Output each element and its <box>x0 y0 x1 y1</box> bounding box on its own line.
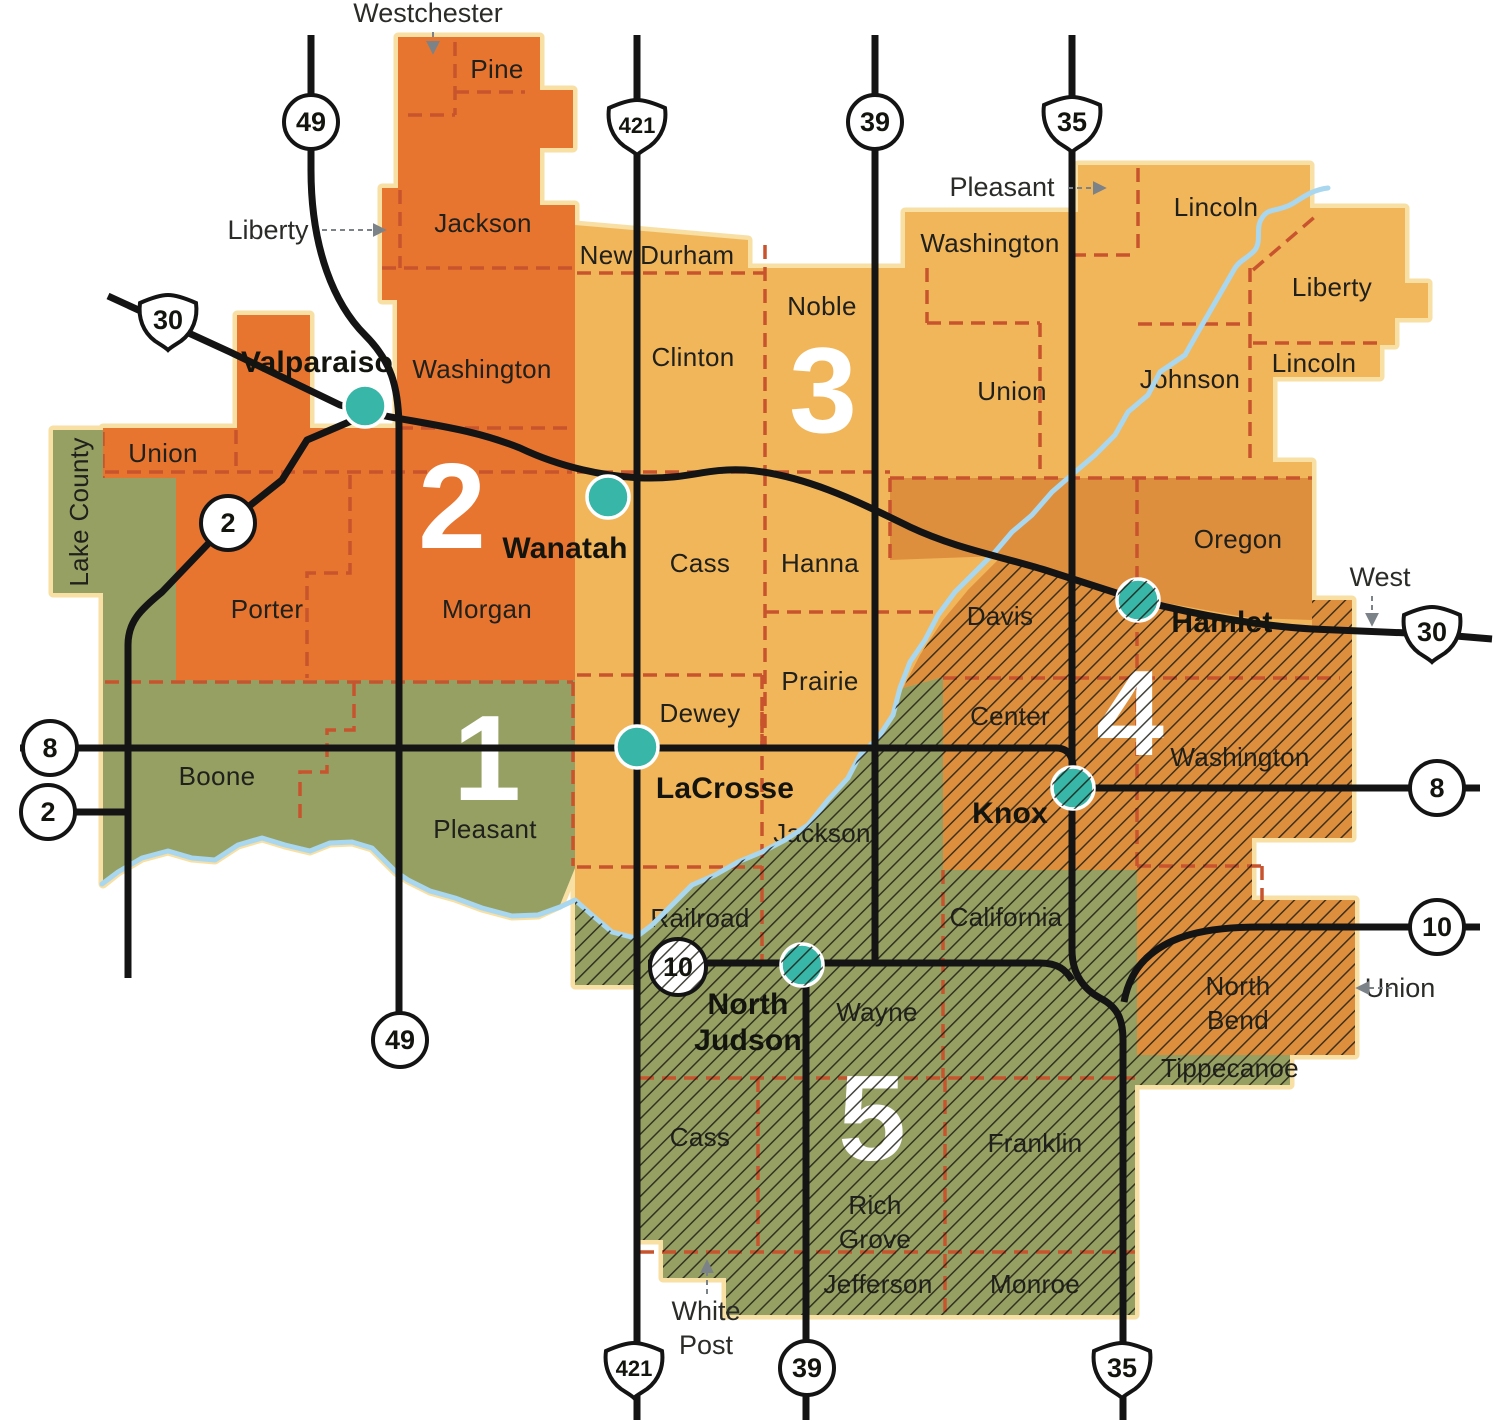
shield-sr2-west: 2 <box>21 785 75 839</box>
svg-text:39: 39 <box>860 107 890 137</box>
town-dot-knox <box>1052 767 1094 809</box>
township-label-new-durham: New Durham <box>580 240 735 270</box>
shield-sr10-hatched: 10 <box>650 939 706 995</box>
callout-liberty: Liberty <box>227 215 309 245</box>
shield-sr2-mid: 2 <box>201 496 255 550</box>
svg-text:35: 35 <box>1107 1353 1137 1383</box>
shield-sr39-south: 39 <box>780 1341 834 1395</box>
shield-sr8-west: 8 <box>23 721 77 775</box>
township-label-dewey: Dewey <box>660 698 741 728</box>
callout-white-post-line1: White <box>671 1296 740 1326</box>
township-label-lincoln-south: Lincoln <box>1272 348 1357 378</box>
shield-us35-south: 35 <box>1094 1343 1151 1398</box>
svg-text:49: 49 <box>385 1025 415 1055</box>
town-label-lacrosse: LaCrosse <box>656 772 794 805</box>
callout-white-post-line2: Post <box>679 1330 734 1360</box>
shield-us30-west: 30 <box>140 295 197 350</box>
township-label-hanna: Hanna <box>781 548 859 578</box>
township-label-morgan: Morgan <box>442 594 532 624</box>
township-label-boone: Boone <box>179 761 256 791</box>
township-label-noble: Noble <box>787 291 856 321</box>
shield-sr8-east: 8 <box>1410 761 1464 815</box>
township-label-cass-d3: Cass <box>670 548 730 578</box>
town-label-north-judson-line2: Judson <box>694 1024 802 1057</box>
svg-text:421: 421 <box>619 113 656 138</box>
township-label-pleasant-d1: Pleasant <box>433 814 537 844</box>
shield-us35-north: 35 <box>1044 97 1101 152</box>
town-dot-hamlet <box>1117 579 1159 621</box>
shield-sr49-south: 49 <box>373 1013 427 1067</box>
town-label-hamlet: Hamlet <box>1171 606 1272 639</box>
district-map-page: 3 New Durham Clinton Noble Washington Un… <box>0 0 1500 1425</box>
shield-sr49-north: 49 <box>284 95 338 149</box>
township-label-oregon: Oregon <box>1194 524 1283 554</box>
town-label-knox: Knox <box>972 797 1048 830</box>
county-district-map: 3 New Durham Clinton Noble Washington Un… <box>0 0 1500 1425</box>
shield-us30-east: 30 <box>1404 607 1461 662</box>
town-label-north-judson-line1: North <box>708 988 789 1021</box>
callout-union: Union <box>1365 973 1436 1003</box>
svg-text:10: 10 <box>1422 912 1452 942</box>
town-label-valparaiso: Valparaiso <box>241 346 393 379</box>
svg-text:39: 39 <box>792 1353 822 1383</box>
town-dot-valparaiso <box>344 385 386 427</box>
district-1-number: 1 <box>453 690 521 826</box>
township-label-porter: Porter <box>231 594 304 624</box>
shield-sr10-east: 10 <box>1410 900 1464 954</box>
shield-us421-north: 421 <box>609 100 666 155</box>
callout-westchester: Westchester <box>353 0 503 28</box>
township-label-pine: Pine <box>470 54 523 84</box>
svg-text:2: 2 <box>40 797 55 827</box>
callout-pleasant: Pleasant <box>949 172 1055 202</box>
township-label-liberty-d3: Liberty <box>1292 272 1372 302</box>
svg-text:8: 8 <box>1429 773 1444 803</box>
shield-sr39-north: 39 <box>848 95 902 149</box>
callout-west: West <box>1349 562 1411 592</box>
township-label-clinton: Clinton <box>651 342 734 372</box>
lake-county-label: Lake County <box>64 437 94 586</box>
township-label-union-d3: Union <box>977 376 1046 406</box>
township-label-jackson-d2: Jackson <box>434 208 531 238</box>
svg-text:35: 35 <box>1057 107 1087 137</box>
town-label-wanatah: Wanatah <box>502 532 627 565</box>
svg-text:30: 30 <box>1417 617 1447 647</box>
district-3-number: 3 <box>789 322 857 458</box>
district-2-number: 2 <box>418 438 486 574</box>
shield-us421-south: 421 <box>606 1343 663 1398</box>
town-dot-wanatah <box>587 476 629 518</box>
svg-text:30: 30 <box>153 305 183 335</box>
town-dot-lacrosse <box>616 726 658 768</box>
svg-text:8: 8 <box>42 733 57 763</box>
svg-text:49: 49 <box>296 107 326 137</box>
town-dot-north-judson <box>781 944 823 986</box>
svg-text:2: 2 <box>220 508 235 538</box>
svg-text:421: 421 <box>616 1356 653 1381</box>
township-label-union-d2: Union <box>128 438 197 468</box>
svg-text:10: 10 <box>663 952 693 982</box>
township-label-washington-d3: Washington <box>920 228 1059 258</box>
township-label-prairie: Prairie <box>781 666 858 696</box>
township-label-washington-d2: Washington <box>412 354 551 384</box>
township-label-lincoln-north: Lincoln <box>1174 192 1259 222</box>
